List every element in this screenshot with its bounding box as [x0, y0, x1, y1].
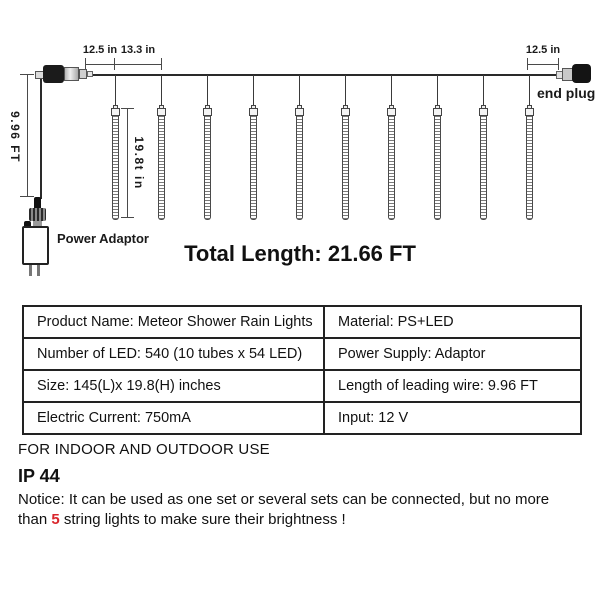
tube-hanger-wire: [529, 75, 530, 107]
spec-table: Product Name: Meteor Shower Rain Lights …: [22, 305, 582, 435]
notice-line2-before: than: [18, 511, 51, 528]
tube-hanger-wire: [483, 75, 484, 107]
tube-body: [388, 116, 395, 220]
connector-graphic: [87, 71, 93, 77]
tube-cap: [479, 108, 488, 116]
tube-cap: [525, 108, 534, 116]
light-tube: [386, 75, 397, 221]
spacing-dimension-label-right: 12.5 in: [524, 44, 562, 56]
spec-cell-product-name: Product Name: Meteor Shower Rain Lights: [23, 306, 324, 338]
notice-line2-after: string lights to make sure their brightn…: [60, 511, 346, 528]
ip-rating: IP 44: [18, 466, 60, 487]
leading-wire-dimension-label: 9.96 FT: [8, 102, 22, 172]
spacing-dimension-line-left: [85, 64, 162, 65]
table-row: Product Name: Meteor Shower Rain Lights …: [23, 306, 581, 338]
dimension-tick: [161, 58, 162, 70]
spacing-dimension-label-2: 13.3 in: [119, 44, 157, 56]
tube-hanger-wire: [391, 75, 392, 107]
spec-cell-size: Size: 145(L)x 19.8(H) inches: [23, 370, 324, 402]
connector-graphic: [64, 67, 79, 81]
tube-cap: [203, 108, 212, 116]
tube-cap: [249, 108, 258, 116]
table-row: Electric Current: 750mA Input: 12 V: [23, 402, 581, 434]
spacing-dimension-line-right: [527, 64, 559, 65]
tube-cap: [111, 108, 120, 116]
leading-wire: [40, 75, 42, 199]
dimension-tick: [121, 108, 134, 109]
tube-height-dimension-line: [127, 109, 128, 218]
light-tube: [156, 75, 167, 221]
tube-hanger-wire: [161, 75, 162, 107]
light-tube: [294, 75, 305, 221]
connector-graphic: [79, 69, 87, 79]
tube-body: [112, 116, 119, 220]
total-length-heading: Total Length: 21.66 FT: [0, 241, 600, 267]
tube-body: [158, 116, 165, 220]
table-row: Number of LED: 540 (10 tubes x 54 LED) P…: [23, 338, 581, 370]
leading-wire-dimension-line: [27, 75, 28, 197]
connector-graphic: [43, 65, 64, 83]
tube-body: [526, 116, 533, 220]
end-plug-label: end plug: [537, 85, 595, 101]
tube-hanger-wire: [253, 75, 254, 107]
notice-highlight: 5: [51, 511, 59, 528]
dimension-tick: [527, 58, 528, 70]
light-tube: [524, 75, 535, 221]
tube-hanger-wire: [299, 75, 300, 107]
light-tube: [248, 75, 259, 221]
end-plug-graphic: [572, 64, 591, 83]
light-tube: [432, 75, 443, 221]
spec-cell-power-supply: Power Supply: Adaptor: [324, 338, 581, 370]
light-tube: [202, 75, 213, 221]
spec-cell-input: Input: 12 V: [324, 402, 581, 434]
spec-cell-led-count: Number of LED: 540 (10 tubes x 54 LED): [23, 338, 324, 370]
light-tube: [340, 75, 351, 221]
tube-cap: [387, 108, 396, 116]
tube-cap: [433, 108, 442, 116]
tube-body: [250, 116, 257, 220]
tube-body: [342, 116, 349, 220]
tube-hanger-wire: [437, 75, 438, 107]
tube-cap: [341, 108, 350, 116]
light-tube: [478, 75, 489, 221]
tube-body: [296, 116, 303, 220]
tube-body: [204, 116, 211, 220]
tube-height-dimension-label: 19.8t in: [132, 131, 146, 195]
tube-hanger-wire: [345, 75, 346, 107]
notice-line1: Notice: It can be used as one set or sev…: [18, 491, 549, 508]
dimension-tick: [114, 58, 115, 70]
product-spec-image: 9.96 FT 12.5 in 13.3 in 12.5 in 19.8t in…: [0, 0, 600, 600]
spec-cell-material: Material: PS+LED: [324, 306, 581, 338]
spec-cell-current: Electric Current: 750mA: [23, 402, 324, 434]
tube-cap: [295, 108, 304, 116]
spec-cell-wire-length: Length of leading wire: 9.96 FT: [324, 370, 581, 402]
tube-body: [480, 116, 487, 220]
spacing-dimension-label-1: 12.5 in: [81, 44, 119, 56]
notice-text: Notice: It can be used as one set or sev…: [18, 490, 558, 530]
usage-statement: FOR INDOOR AND OUTDOOR USE: [18, 441, 270, 458]
dimension-tick: [20, 196, 34, 197]
tube-hanger-wire: [115, 75, 116, 107]
dimension-tick: [20, 74, 34, 75]
tube-cap: [157, 108, 166, 116]
dimension-tick: [121, 217, 134, 218]
tube-hanger-wire: [207, 75, 208, 107]
tube-body: [434, 116, 441, 220]
dimension-tick: [558, 58, 559, 70]
power-adaptor-plug-graphic: [29, 208, 46, 221]
light-tube: [110, 75, 121, 221]
table-row: Size: 145(L)x 19.8(H) inches Length of l…: [23, 370, 581, 402]
